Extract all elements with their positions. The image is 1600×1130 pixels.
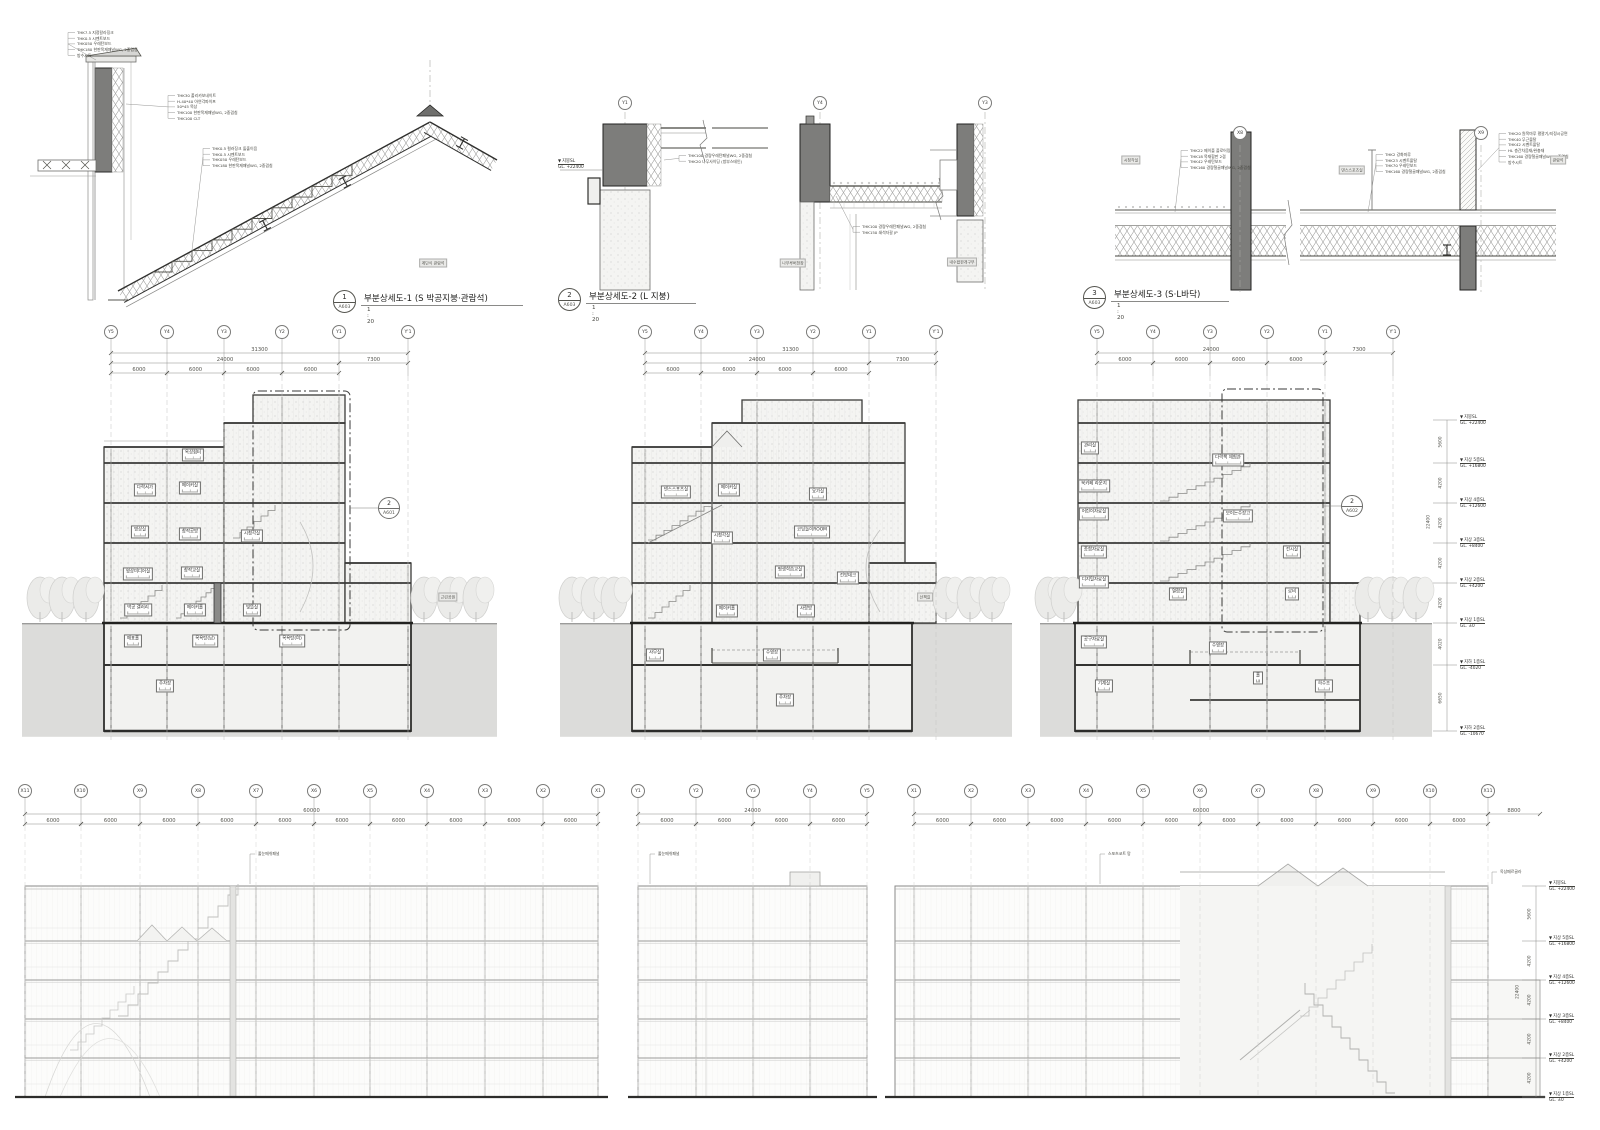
section-1-drawing — [22, 339, 497, 740]
elevation-1-drawing — [15, 798, 608, 1097]
elevation-3-drawing — [885, 798, 1546, 1097]
drawing-sheet: 1 A603 부분상세도-1 (S 박공지붕·관람석) 1 : 20 2 A60… — [0, 0, 1600, 1130]
detail-2-drawing — [560, 112, 985, 292]
section-3-drawing — [1035, 339, 1457, 740]
section-2-drawing — [559, 339, 1012, 740]
detail-annotations — [68, 33, 1506, 251]
detail-1-drawing — [30, 48, 497, 307]
sheet-linework — [0, 0, 1600, 1130]
elevation-2-drawing — [628, 798, 877, 1097]
